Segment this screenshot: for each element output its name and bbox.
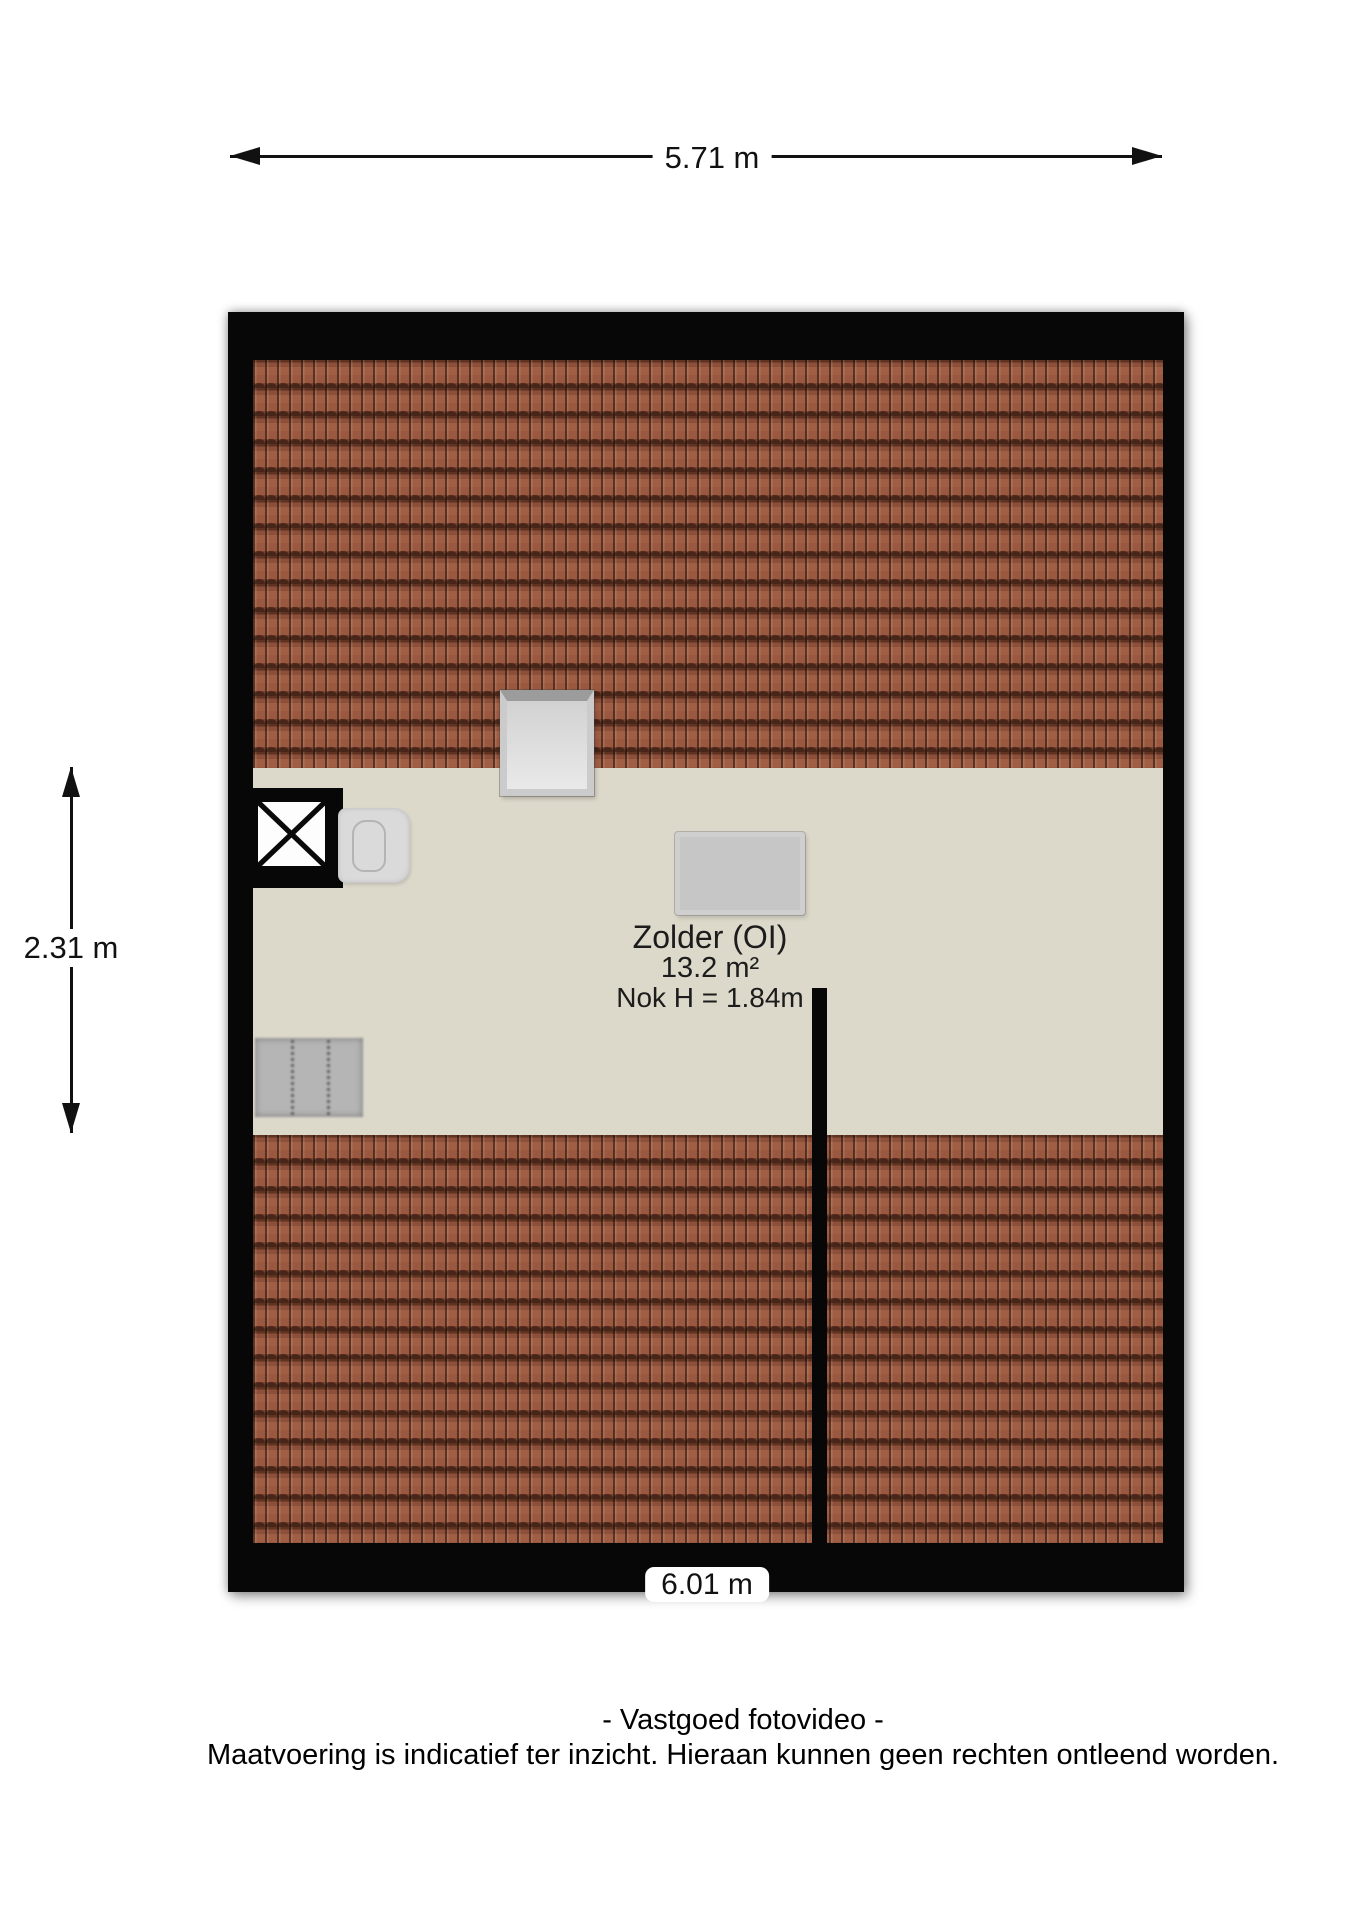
arrow-left-icon <box>230 147 260 165</box>
toilet-fixture <box>338 808 410 883</box>
toilet-bowl-outline <box>352 820 386 872</box>
furniture-block <box>675 832 805 915</box>
footer-disclaimer: Maatvoering is indicatief ter inzicht. H… <box>207 1739 1279 1772</box>
dimension-bottom-label: 6.01 m <box>645 1567 769 1602</box>
stairwell-cross-icon <box>258 802 325 866</box>
roof-section-top <box>253 360 1163 768</box>
room-ridge-height: Nok H = 1.84m <box>616 983 804 1012</box>
dimension-top-label: 5.71 m <box>653 139 772 177</box>
footer-credit: - Vastgoed fotovideo - <box>602 1704 884 1737</box>
arrow-up-icon <box>62 767 80 797</box>
roof-window-skylight <box>500 690 594 796</box>
building-interior: Zolder (OI) 13.2 m² Nok H = 1.84m <box>253 360 1163 1543</box>
room-area: 13.2 m² <box>616 953 804 983</box>
arrow-down-icon <box>62 1103 80 1133</box>
room-name: Zolder (OI) <box>616 922 804 953</box>
wardrobe-divider <box>291 1040 294 1115</box>
wardrobe <box>255 1038 363 1117</box>
building-outline: Zolder (OI) 13.2 m² Nok H = 1.84m <box>228 312 1184 1592</box>
wardrobe-divider <box>327 1040 330 1115</box>
floorplan-page: 5.71 m 2.31 m <box>0 0 1358 1920</box>
arrow-right-icon <box>1132 147 1162 165</box>
room-label: Zolder (OI) 13.2 m² Nok H = 1.84m <box>616 922 804 1012</box>
interior-wall <box>812 988 827 1543</box>
dimension-left-label: 2.31 m <box>12 929 131 967</box>
roof-section-bottom <box>253 1135 1163 1543</box>
stairwell-opening <box>258 802 325 866</box>
stairwell <box>248 788 343 888</box>
